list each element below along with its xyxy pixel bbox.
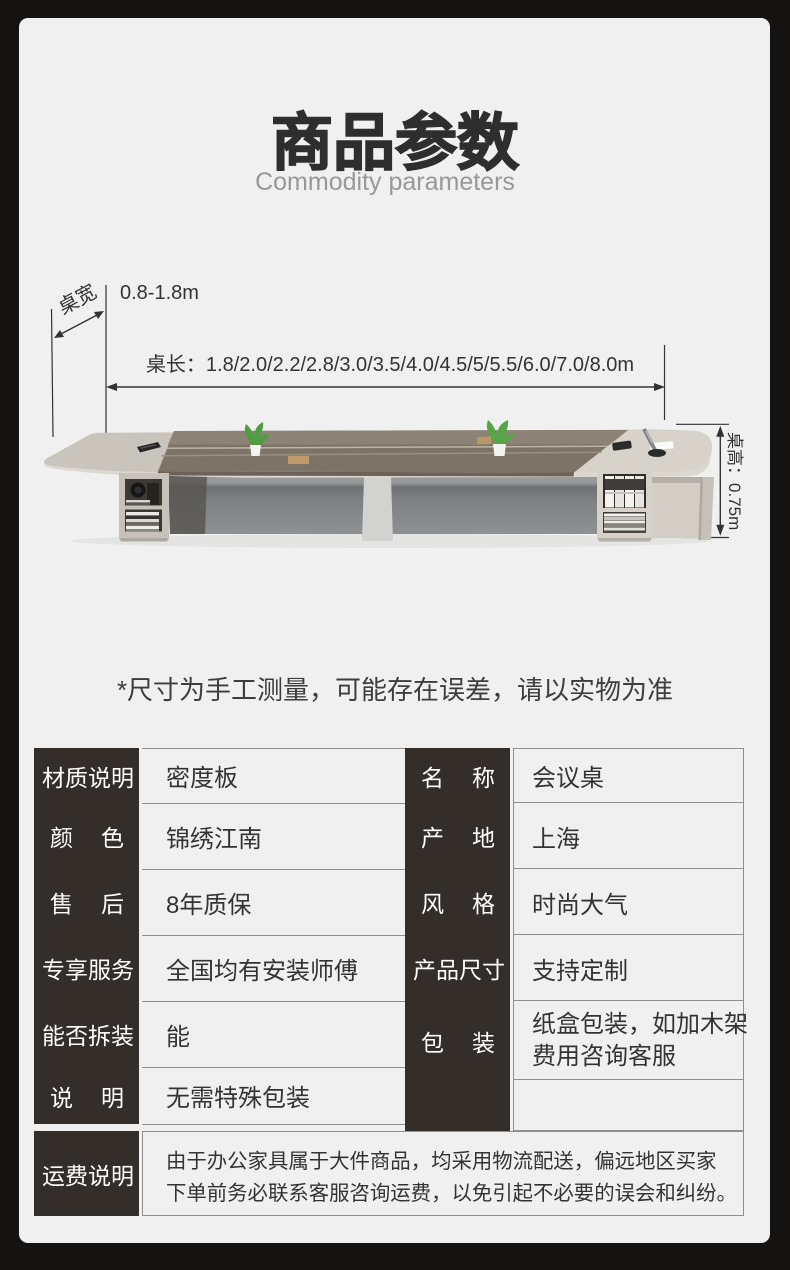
svg-text:桌长：1.8/2.0/2.2/2.8/3.0/3.5/4.0: 桌长：1.8/2.0/2.2/2.8/3.0/3.5/4.0/4.5/5/5.5… bbox=[146, 353, 634, 376]
svg-text:0.8-1.8m: 0.8-1.8m bbox=[120, 282, 199, 304]
svg-text:桌宽: 桌宽 bbox=[54, 280, 100, 319]
svg-text:桌高：0.75m: 桌高：0.75m bbox=[725, 432, 744, 530]
